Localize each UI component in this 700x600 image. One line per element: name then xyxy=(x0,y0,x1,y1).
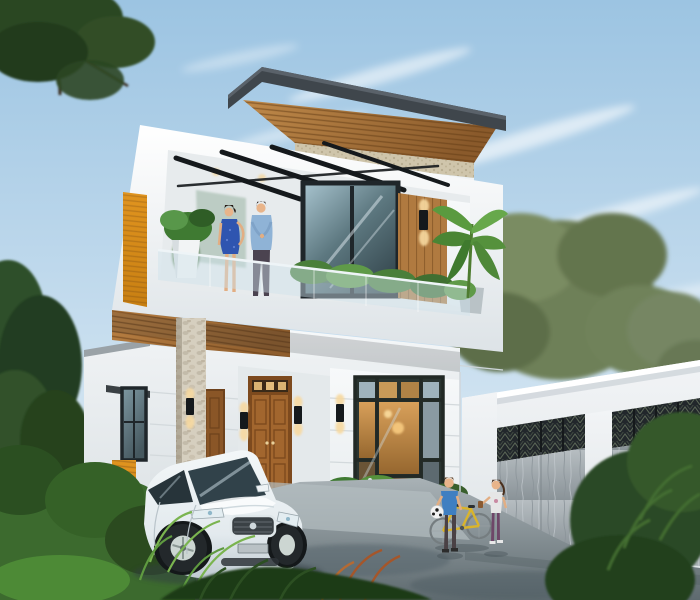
car-plate xyxy=(238,544,268,553)
car-emblem xyxy=(250,523,257,530)
boy-head xyxy=(444,478,454,488)
house xyxy=(84,67,508,552)
balcony-sconce xyxy=(419,199,429,246)
man-shirt xyxy=(251,215,273,250)
bike-saddle xyxy=(468,505,475,508)
girl-leg-right xyxy=(497,512,500,540)
woman-dress xyxy=(220,219,240,254)
pillar-sconce xyxy=(186,388,195,429)
interior-lamp-glow xyxy=(392,422,404,434)
render-canvas xyxy=(0,0,700,600)
girl-toy xyxy=(478,501,483,508)
boy-leg-right xyxy=(452,514,456,549)
woman-head xyxy=(225,208,234,217)
girl-head xyxy=(492,481,501,490)
sconce-fixture xyxy=(419,210,428,230)
car-rim-right xyxy=(279,535,295,556)
car-intake xyxy=(221,558,279,566)
man-head xyxy=(256,203,265,212)
stone-pillar xyxy=(176,318,206,470)
scene-svg xyxy=(0,0,700,600)
soccer-ball xyxy=(431,506,444,519)
